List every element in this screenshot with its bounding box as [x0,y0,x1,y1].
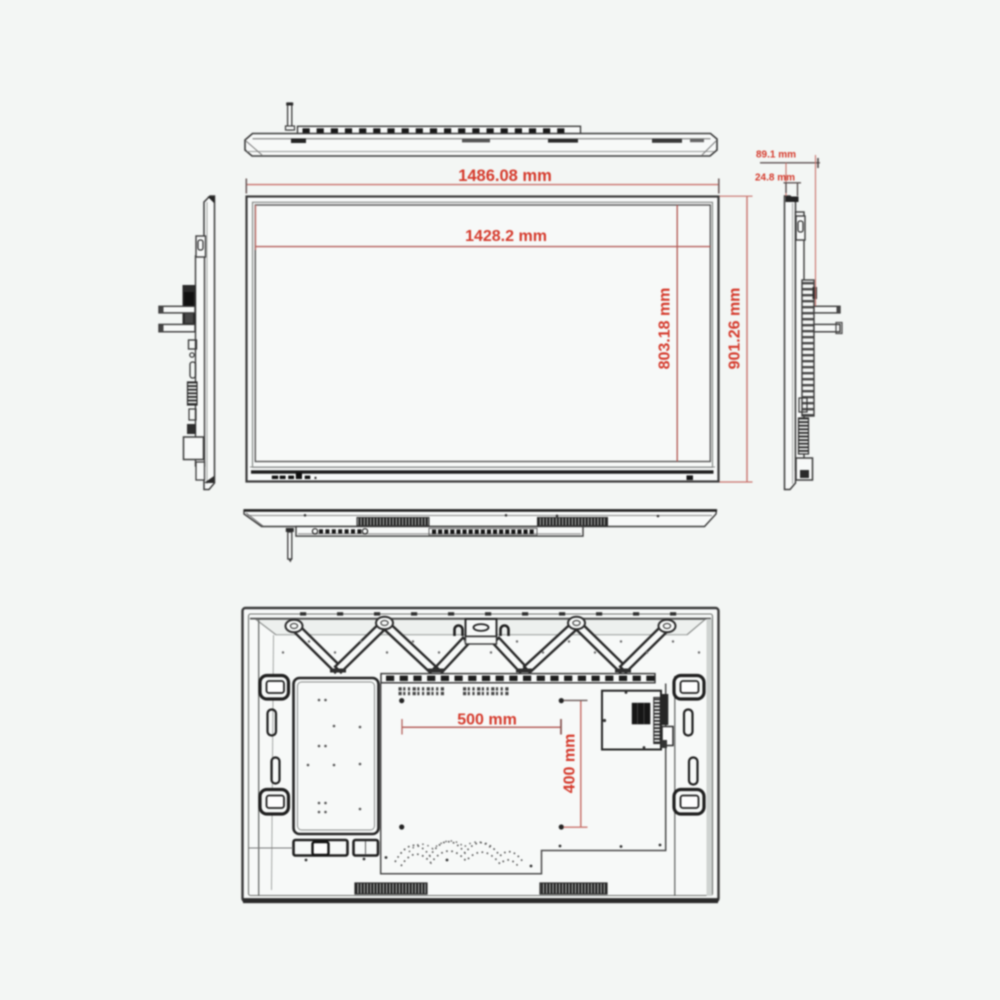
svg-text:400 mm: 400 mm [562,734,579,794]
svg-text:1486.08 mm: 1486.08 mm [458,167,552,185]
svg-text:500 mm: 500 mm [457,712,517,729]
svg-text:901.26 mm: 901.26 mm [727,288,744,370]
svg-text:24.8 mm: 24.8 mm [755,173,795,184]
svg-text:1428.2 mm: 1428.2 mm [465,228,547,245]
svg-text:803.18 mm: 803.18 mm [657,288,674,370]
svg-text:89.1 mm: 89.1 mm [756,150,796,161]
